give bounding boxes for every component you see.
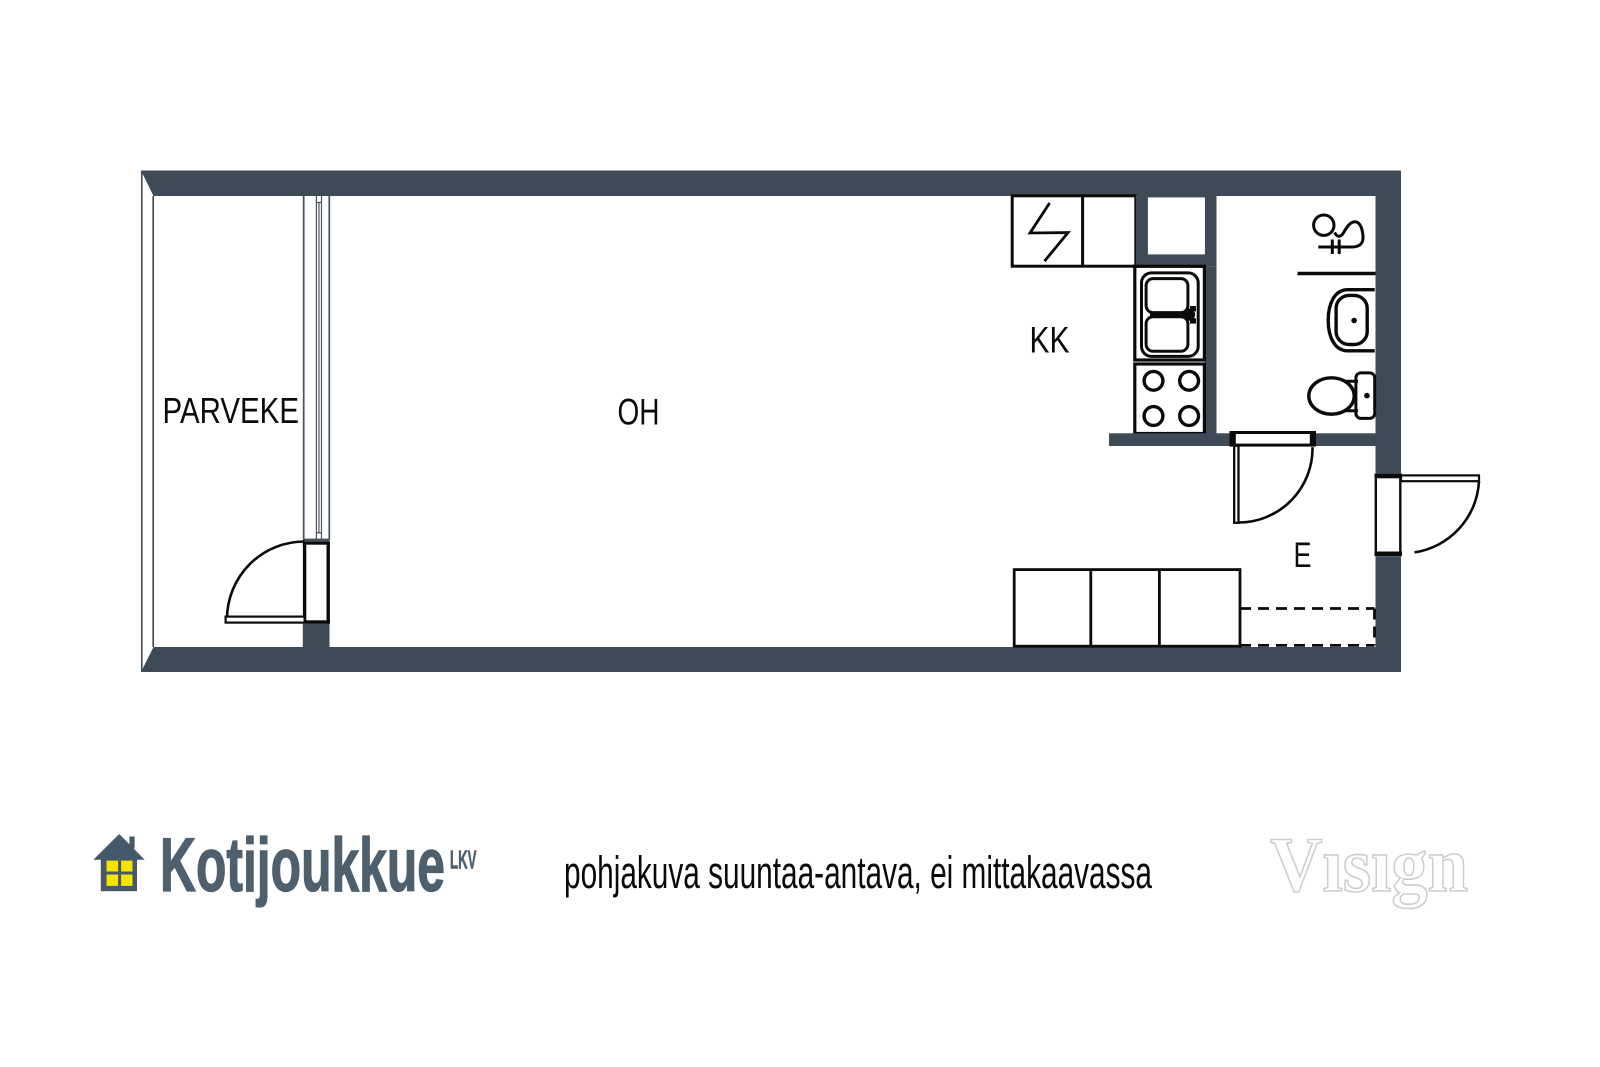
svg-text:PARVEKE: PARVEKE bbox=[163, 390, 300, 431]
svg-text:KK: KK bbox=[1030, 320, 1070, 361]
svg-text:LKV: LKV bbox=[450, 845, 477, 875]
svg-text:pohjakuva suuntaa-antava, ei m: pohjakuva suuntaa-antava, ei mittakaavas… bbox=[564, 847, 1153, 898]
svg-text:Vısıgn: Vısıgn bbox=[1270, 821, 1468, 908]
svg-text:E: E bbox=[1294, 536, 1312, 575]
svg-text:Kotijoukkue: Kotijoukkue bbox=[160, 823, 445, 908]
svg-text:OH: OH bbox=[618, 390, 660, 432]
